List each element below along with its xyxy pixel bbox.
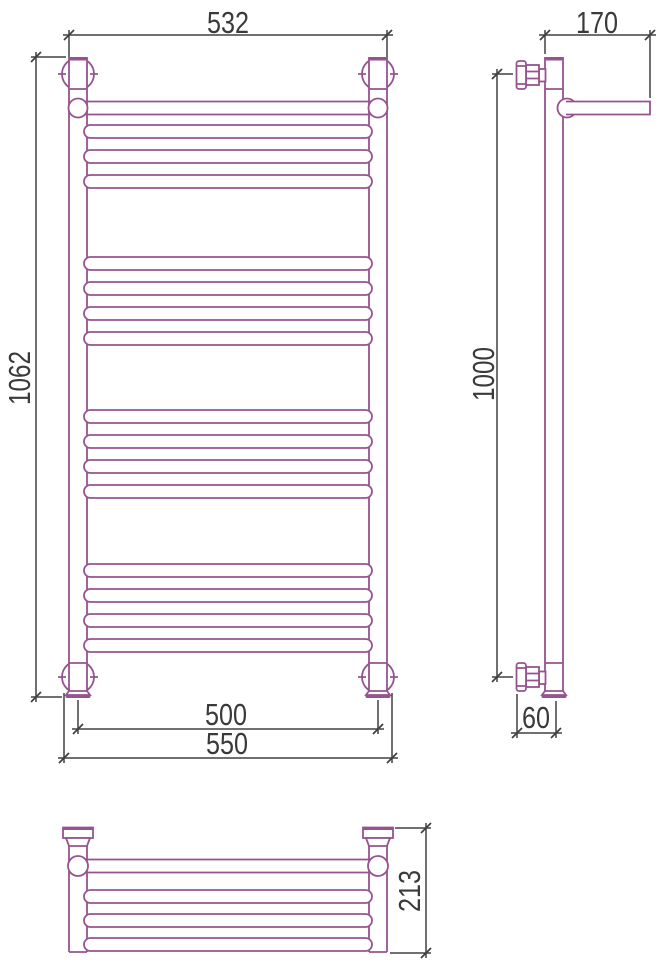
post-bottom-flare (66, 691, 90, 695)
post-bottom-flare (366, 691, 390, 695)
dim-side-height: 1000 (466, 69, 513, 682)
dim-side-offset: 60 (511, 694, 562, 738)
towel-bar (84, 938, 372, 951)
towel-bar (84, 282, 372, 295)
tube-bottom-flare (542, 691, 566, 695)
front-view: 532 1062 500 550 (2, 5, 398, 763)
dim-label-1000: 1000 (466, 347, 501, 401)
dim-label-1062: 1062 (2, 351, 37, 405)
towel-bar (84, 914, 372, 927)
front-top-collector-bar (69, 99, 388, 118)
towel-bar (84, 460, 372, 473)
towel-rail-technical-drawing: 532 1062 500 550 (0, 0, 664, 970)
dim-front-height: 1062 (2, 52, 66, 702)
towel-bar (84, 332, 372, 345)
towel-bar (84, 410, 372, 423)
dim-label-170: 170 (576, 5, 618, 40)
towel-bar (84, 257, 372, 270)
towel-bar (84, 589, 372, 602)
collector-boss (369, 99, 388, 118)
dim-front-width: 532 (63, 5, 393, 57)
towel-bar (84, 175, 372, 188)
collector-boss (368, 856, 388, 876)
side-tube (542, 57, 567, 698)
towel-bar (84, 614, 372, 627)
towel-bar (84, 307, 372, 320)
towel-bar (84, 435, 372, 448)
collector-boss (68, 856, 88, 876)
front-towel-bars (84, 125, 372, 652)
valve-nut (526, 65, 539, 85)
valve-nut (526, 667, 539, 687)
top-view: 213 (63, 823, 431, 958)
top-towel-bars (84, 890, 372, 951)
dim-label-532: 532 (207, 5, 249, 40)
dim-label-213: 213 (392, 870, 427, 912)
towel-bar (84, 150, 372, 163)
towel-bar (84, 564, 372, 577)
valve-nut (366, 838, 390, 846)
valve-nut (66, 838, 90, 846)
side-valve-bottom (517, 663, 546, 691)
top-collector-bar (68, 856, 388, 876)
side-valve-top (517, 61, 546, 89)
side-view: 170 1000 60 (466, 5, 656, 738)
side-shelf-arm (558, 99, 651, 118)
drawing-canvas: 532 1062 500 550 (0, 0, 664, 970)
towel-bar (84, 890, 372, 903)
collector-boss (69, 99, 88, 118)
dim-label-60: 60 (522, 700, 550, 735)
dim-top-depth: 213 (390, 823, 431, 958)
dim-label-550: 550 (206, 726, 248, 761)
towel-bar (84, 639, 372, 652)
towel-bar (84, 485, 372, 498)
towel-bar (84, 125, 372, 138)
